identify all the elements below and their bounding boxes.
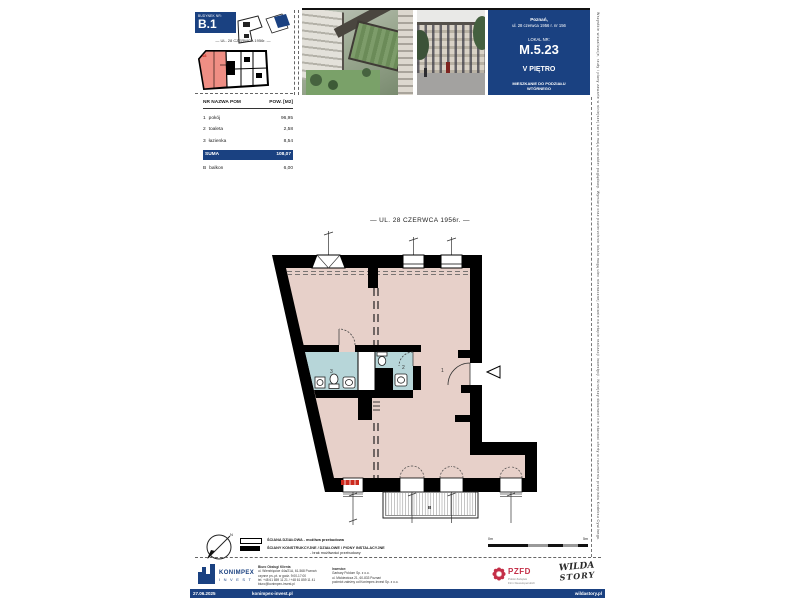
room-area: 96,95 [281, 116, 293, 121]
table-row: 2toaleta 2,58 [203, 127, 293, 132]
plan-street-title: — UL. 28 CZERWCA 1956r. — [270, 217, 570, 224]
col-nazwa: NR NAZWA POM [203, 100, 241, 105]
mini-floor-plan: 18 [196, 45, 270, 93]
investor-line: podmiot zależny od Konimpex-Invest Sp. z… [332, 580, 398, 584]
pzfd-wordmark: PZFD [508, 567, 531, 576]
table-row: 1pokój 96,95 [203, 116, 293, 121]
mini-plan-divider [195, 93, 293, 94]
panel-address: ul. 28 czerwca 1956 r. nr 156 [488, 23, 590, 28]
render-building-right [398, 10, 413, 95]
panel-note-line2: WTÓRNEGO [488, 86, 590, 91]
office-line: ul. Wierzbięcice 44a/21A, 61-568 Poznań [258, 569, 316, 573]
header-separator [294, 10, 299, 95]
room-no: 1 [203, 116, 206, 121]
room-area: 8,54 [284, 139, 293, 144]
wall-stub-top [368, 268, 378, 288]
table-row-balcony: Bbalkon 6,00 [203, 166, 293, 171]
unit-info-panel: Poznań, ul. 28 czerwca 1956 r. nr 156 LO… [488, 10, 590, 95]
investor-block: Inwestor: Garbary Poldom Sp. z o.o. ul. … [332, 567, 398, 584]
photo-aerial-render [302, 10, 413, 95]
table-row: 3łazienka 8,54 [203, 139, 293, 144]
room-area: 2,58 [284, 127, 293, 132]
room-name: pokój [209, 116, 220, 121]
footer-divider [195, 557, 601, 558]
invest-wordmark: I N V E S T [219, 577, 252, 582]
scale-max: 5m [583, 537, 588, 541]
render-tree [328, 80, 338, 90]
room-name: balkon [209, 166, 223, 171]
room-no: B [203, 166, 206, 171]
render-tree [310, 74, 322, 86]
floor-plan: 3 2 1 B [255, 225, 605, 535]
pzfd-subtitle: Firm Deweloperskich [508, 581, 535, 585]
mini-street-label: — UL. 28 CZERWCA 1956r. — [193, 38, 293, 43]
legend-line1: ŚCIANA DZIAŁOWA - możliwa przebudowa [267, 538, 344, 542]
room-area: 6,00 [284, 166, 293, 171]
panel-city: Poznań, [488, 17, 590, 22]
room-2-label: 2 [402, 365, 405, 371]
niche [358, 352, 375, 390]
scale-segment [563, 544, 578, 547]
scale-segment [548, 544, 563, 547]
photo-street-render [417, 10, 485, 95]
room-name: toaleta [209, 127, 223, 132]
office-email: biuro@konimpex-invest.pl [258, 582, 316, 586]
konimpex-wordmark: KONIMPEX [219, 570, 254, 576]
mini-unit-number: 18 [202, 53, 207, 58]
footer-bar: 27.06.2025 konimpex-invest.pl wildastory… [190, 589, 605, 598]
konimpex-logo-icon [198, 564, 215, 584]
compass-rose: N [202, 530, 236, 564]
col-pow: POW. [M2] [269, 100, 293, 105]
scale-segment [528, 544, 548, 547]
room-3-label: 3 [330, 369, 333, 375]
scale-segment [488, 544, 528, 547]
konimpex-invest-logo: KONIMPEX I N V E S T [196, 562, 256, 588]
facade-door [446, 62, 450, 73]
apartment-card-page: BUDYNEK NR: B.1 — UL. 28 CZERWCA 1956r. … [0, 0, 800, 600]
panel-floor: V PIĘTRO [488, 66, 590, 73]
pzfd-logo: PZFD Polski Związek Firm Deweloperskich [492, 566, 558, 586]
legend-line3: - brak możliwości przebudowy [310, 551, 361, 555]
room-name: łazienka [209, 139, 227, 144]
area-table: NR NAZWA POM POW. [M2] 1pokój 96,95 2toa… [203, 100, 293, 171]
scale-bar: 0m 5m [488, 537, 588, 551]
wilda-story-logo: WILDA STORY [553, 561, 600, 582]
wilda-line2: STORY [554, 570, 601, 582]
table-suma-row: SUMA 108,07 [203, 150, 293, 160]
top-dimension-lines [324, 231, 456, 255]
suma-label: SUMA [205, 152, 219, 157]
footer-site-left: konimpex-invest.pl [252, 591, 293, 596]
entrance-opening [470, 363, 482, 385]
building-number-box: BUDYNEK NR: B.1 [195, 12, 236, 33]
scale-min: 0m [488, 537, 493, 541]
scale-segment [578, 544, 588, 547]
room-no: 2 [203, 127, 206, 132]
compass-north-label: N [230, 532, 233, 537]
room-1-label: 1 [441, 368, 444, 374]
pzfd-rosette-icon [492, 567, 506, 581]
entrance-arrow-icon [487, 366, 500, 378]
street-tree [473, 16, 485, 50]
legend-swatch-partition [240, 538, 262, 544]
office-contact-block: Biuro Obsługi Klienta ul. Wierzbięcice 4… [258, 565, 316, 586]
table-header: NR NAZWA POM POW. [M2] [203, 100, 293, 109]
footer-site-right: wildastory.pl [575, 591, 602, 596]
room-no: 3 [203, 139, 206, 144]
street-person [424, 68, 427, 77]
render-tree [362, 68, 371, 77]
street-ground [417, 73, 485, 95]
suma-area: 108,07 [276, 152, 291, 157]
panel-lokal-number: M.5.23 [488, 42, 590, 57]
legend-line2: ŚCIANY KONSTRUKCYJNE / DZIAŁOWE / PIONY … [267, 546, 385, 550]
footer-date: 27.06.2025 [193, 591, 216, 596]
building-number: B.1 [198, 18, 236, 31]
legend-swatch-structural [240, 546, 260, 551]
